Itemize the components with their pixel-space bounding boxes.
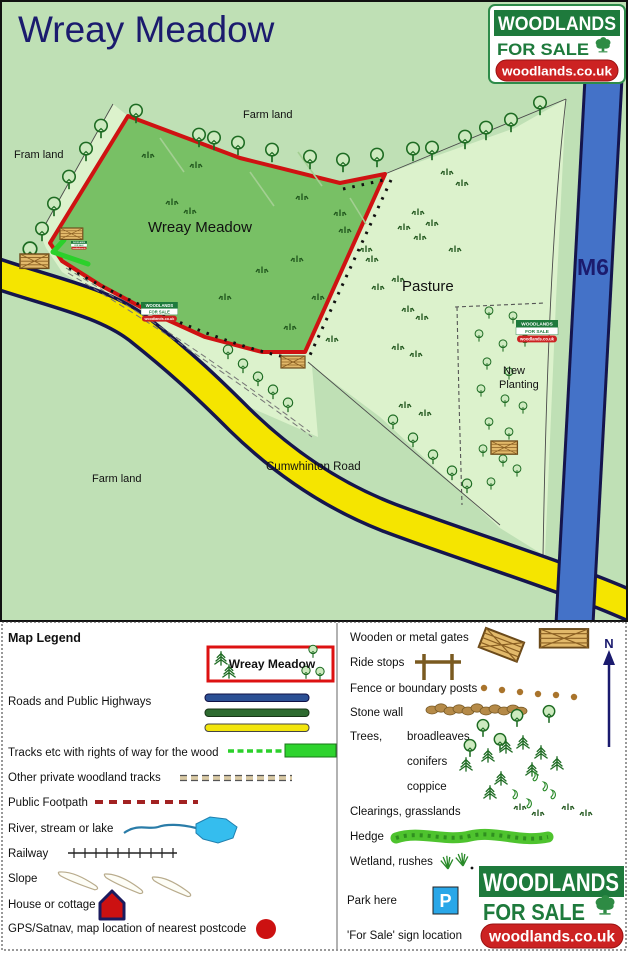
sign-line2: FOR SALE bbox=[525, 329, 549, 335]
legend-rightofway-label: Tracks etc with rights of way for the wo… bbox=[8, 747, 219, 759]
legend-wood-name: Wreay Meadow bbox=[229, 657, 316, 671]
logo-for-sale-text: FOR SALE bbox=[483, 899, 585, 925]
gps-symbol bbox=[256, 919, 276, 939]
legend-stone-wall-label: Stone wall bbox=[350, 707, 403, 719]
north-label: N bbox=[604, 636, 613, 651]
legend-trees-label: Trees, bbox=[350, 731, 382, 743]
legend-park-here-label: Park here bbox=[347, 895, 397, 907]
label-farm-land-top: Farm land bbox=[243, 109, 293, 121]
label-cumwhinton-road: Cumwhinton Road bbox=[266, 461, 361, 473]
map-section: WOODLANDS FOR SALE woodlands.co.uk WOODL… bbox=[0, 0, 628, 624]
label-new-planting-1: New bbox=[503, 365, 525, 377]
label-m6: M6 bbox=[577, 254, 609, 280]
logo-woodlands-text: WOODLANDS bbox=[483, 869, 619, 897]
label-fram-land: Fram land bbox=[14, 149, 64, 161]
legend-fence-posts-label: Fence or boundary posts bbox=[350, 683, 477, 695]
logo-woodlands-text: WOODLANDS bbox=[498, 14, 616, 35]
roads-symbol bbox=[205, 694, 309, 732]
legend-house-label: House or cottage bbox=[8, 899, 96, 911]
legend-wetland-label: Wetland, rushes bbox=[350, 856, 433, 868]
legend-heading: Map Legend bbox=[8, 631, 81, 645]
sign-line2: FOR SALE bbox=[149, 309, 170, 314]
legend-broadleaves-label: broadleaves bbox=[407, 731, 470, 743]
hedge-symbol bbox=[396, 834, 548, 838]
legend-coppice-label: coppice bbox=[407, 781, 447, 793]
logo-for-sale-text: FOR SALE bbox=[497, 40, 589, 59]
label-farm-land-bottom: Farm land bbox=[92, 473, 142, 485]
logo-url-text: woodlands.co.uk bbox=[488, 929, 615, 946]
sign-line3: woodlands.co.uk bbox=[519, 337, 555, 342]
legend-private-tracks-label: Other private woodland tracks bbox=[8, 772, 161, 784]
page-title: Wreay Meadow bbox=[18, 9, 275, 50]
woodlands-logo-top: WOODLANDS FOR SALE woodlands.co.uk bbox=[489, 5, 625, 83]
legend-hedge-label: Hedge bbox=[350, 831, 384, 843]
legend-footpath-label: Public Footpath bbox=[8, 797, 88, 809]
logo-url-text: woodlands.co.uk bbox=[501, 64, 613, 79]
sign-line1: WOODLANDS bbox=[521, 321, 552, 327]
woodlands-logo-bottom: WOODLANDS FOR SALE woodlands.co.uk bbox=[479, 866, 624, 948]
parking-symbol: P bbox=[433, 887, 458, 914]
sign-line3: woodlands.co.uk bbox=[144, 317, 176, 321]
legend-river-label: River, stream or lake bbox=[8, 823, 113, 835]
for-sale-sign-marker: WOODLANDS FOR SALE woodlands.co.uk bbox=[141, 302, 178, 322]
label-new-planting-2: Planting bbox=[499, 379, 539, 391]
map-canvas: WOODLANDS FOR SALE woodlands.co.uk WOODL… bbox=[0, 0, 628, 954]
legend-section: Map Legend Wreay Meadow Roads and Public… bbox=[2, 622, 626, 950]
wreay-meadow-sale-map: WOODLANDS FOR SALE woodlands.co.uk WOODL… bbox=[0, 0, 628, 954]
legend-railway-label: Railway bbox=[8, 848, 49, 860]
legend-ride-stops-label: Ride stops bbox=[350, 657, 405, 669]
sign-line1: WOODLANDS bbox=[146, 303, 174, 308]
label-pasture: Pasture bbox=[402, 278, 454, 295]
for-sale-sign-marker: WOODLANDS FOR SALE woodlands.co.uk bbox=[71, 241, 87, 250]
legend-gates-label: Wooden or metal gates bbox=[350, 632, 469, 644]
label-wreay-meadow: Wreay Meadow bbox=[148, 219, 252, 236]
for-sale-sign-marker: WOODLANDS FOR SALE woodlands.co.uk bbox=[516, 320, 558, 342]
legend-wood-box: Wreay Meadow bbox=[208, 645, 333, 681]
legend-for-sale-label: 'For Sale' sign location bbox=[347, 930, 462, 942]
parking-p: P bbox=[439, 891, 451, 911]
legend-gps-label: GPS/Satnav, map location of nearest post… bbox=[8, 923, 246, 935]
legend-roads-label: Roads and Public Highways bbox=[8, 696, 151, 708]
legend-clearings-label: Clearings, grasslands bbox=[350, 806, 461, 818]
legend-slope-label: Slope bbox=[8, 873, 37, 885]
legend-conifers-label: conifers bbox=[407, 756, 448, 768]
